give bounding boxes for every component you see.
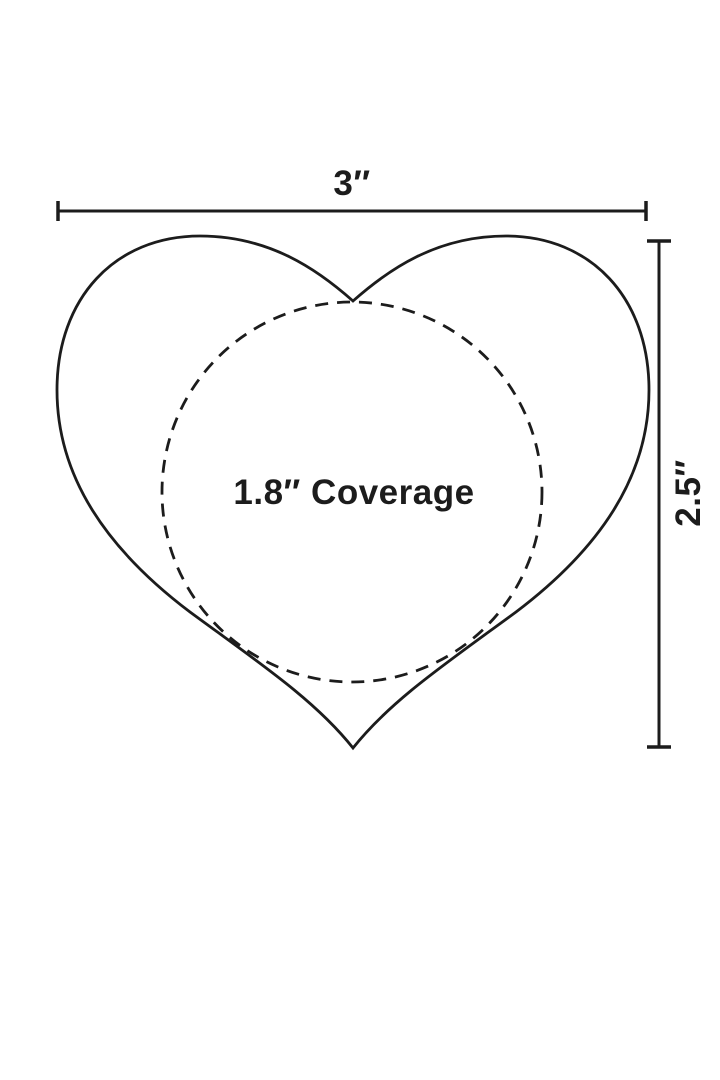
- height-label: 2.5″: [669, 459, 708, 526]
- width-label: 3″: [333, 164, 370, 203]
- coverage-label: 1.8″ Coverage: [233, 473, 474, 512]
- diagram-canvas: 3″ 2.5″ 1.8″ Coverage: [0, 0, 720, 1080]
- heart-size-diagram: 3″ 2.5″ 1.8″ Coverage: [0, 0, 720, 1080]
